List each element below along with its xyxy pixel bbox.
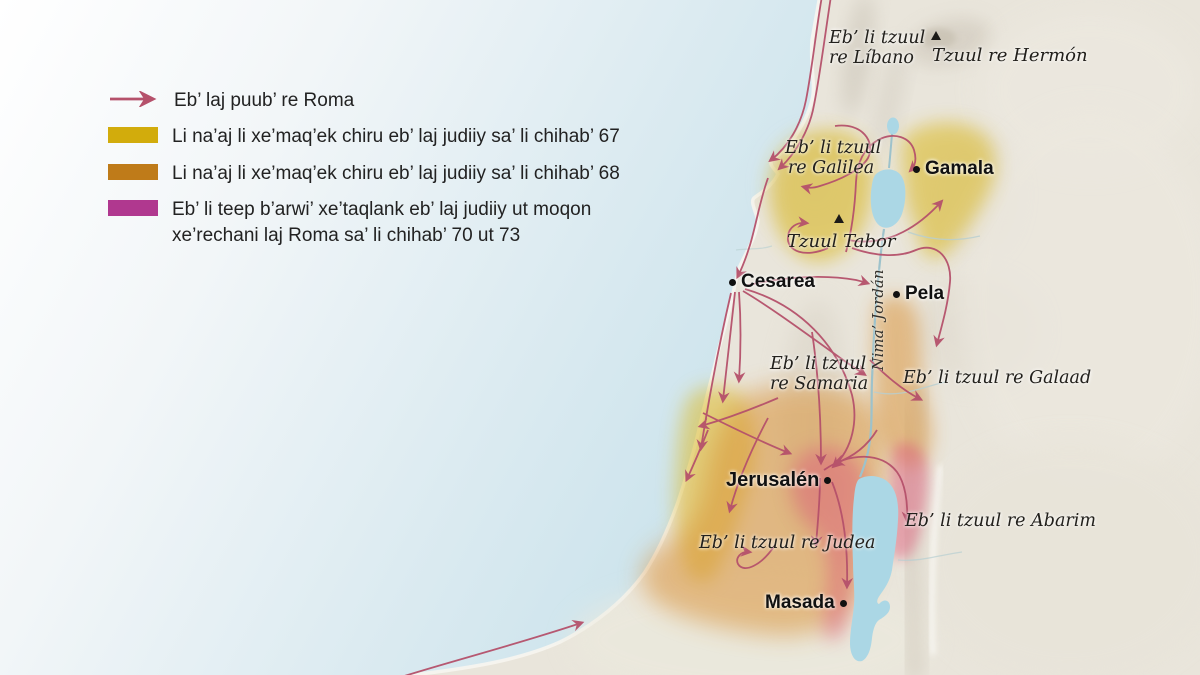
region-label-libano: Eb’ li tzuul re Líbano xyxy=(829,29,925,68)
map-canvas: Eb’ laj puub’ re Roma Li na’aj li xe’maq… xyxy=(0,0,1200,675)
region-label-samaria: Eb’ li tzuul re Samaria xyxy=(770,355,862,394)
region-label-galaad: Eb’ li tzuul re Galaad xyxy=(903,369,1091,389)
city-dot xyxy=(729,279,736,286)
city-cesarea: Cesarea xyxy=(729,271,815,293)
legend-item-roman-army: Eb’ laj puub’ re Roma xyxy=(108,88,677,113)
city-jerusalen: Jerusalén xyxy=(726,469,831,492)
city-dot xyxy=(840,600,847,607)
magenta-swatch-icon xyxy=(108,200,158,216)
lake-huleh xyxy=(887,118,899,135)
orange-swatch-icon xyxy=(108,164,158,180)
legend: Eb’ laj puub’ re Roma Li na’aj li xe’maq… xyxy=(108,88,677,248)
tabor-peak-icon xyxy=(834,214,844,223)
region-label-galilea: Eb’ li tzuul re Galilea xyxy=(785,139,877,178)
river-label-jordan: Nima’ Jordán xyxy=(869,269,887,370)
legend-label: Eb’ laj puub’ re Roma xyxy=(174,88,354,113)
region-label-abarim: Eb’ li tzuul re Abarim xyxy=(905,512,1096,532)
city-dot xyxy=(913,166,920,173)
city-masada: Masada xyxy=(765,592,847,614)
hermon-peak-icon xyxy=(931,31,941,40)
mountain-label-tabor: Tzuul Tabor xyxy=(787,231,895,252)
city-gamala: Gamala xyxy=(913,158,994,180)
city-dot xyxy=(893,291,900,298)
legend-item-year-67: Li na’aj li xe’maq’ek chiru eb’ laj judi… xyxy=(108,124,677,149)
mountain-label-hermon: Tzuul re Hermón xyxy=(932,45,1088,66)
yellow-swatch-icon xyxy=(108,127,158,143)
legend-item-year-68: Li na’aj li xe’maq’ek chiru eb’ laj judi… xyxy=(108,161,677,186)
legend-item-year-70-73: Eb’ li teep b’arwi’ xe’taqlank eb’ laj j… xyxy=(108,197,677,248)
route-arrow-icon xyxy=(108,91,160,107)
legend-label: Li na’aj li xe’maq’ek chiru eb’ laj judi… xyxy=(172,124,620,149)
legend-label: Li na’aj li xe’maq’ek chiru eb’ laj judi… xyxy=(172,161,620,186)
city-pela: Pela xyxy=(893,283,944,305)
city-dot xyxy=(824,477,831,484)
region-label-judea: Eb’ li tzuul re Judea xyxy=(699,534,875,554)
legend-label: Eb’ li teep b’arwi’ xe’taqlank eb’ laj j… xyxy=(172,197,677,248)
